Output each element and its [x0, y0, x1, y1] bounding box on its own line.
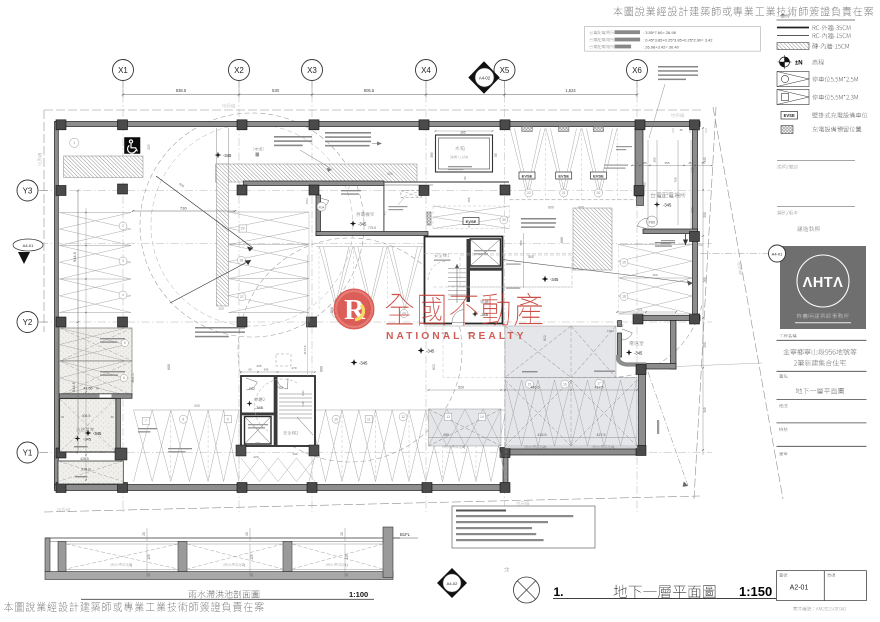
svg-text:-345: -345	[634, 351, 643, 356]
svg-text:838.5: 838.5	[176, 88, 187, 93]
svg-text:385: 385	[653, 157, 657, 162]
svg-text:65: 65	[494, 153, 498, 157]
svg-text:1.: 1.	[554, 585, 564, 599]
svg-text:250: 250	[703, 342, 707, 348]
svg-text:417: 417	[383, 210, 387, 215]
svg-text:230: 230	[292, 452, 297, 456]
svg-text:F60A: F60A	[305, 198, 309, 204]
svg-text:10: 10	[334, 417, 338, 421]
svg-text:Y2: Y2	[23, 318, 33, 327]
svg-text:45: 45	[345, 573, 349, 577]
svg-text:-345: -345	[93, 431, 102, 436]
svg-text:90: 90	[248, 368, 252, 372]
svg-text:385: 385	[430, 152, 434, 158]
svg-text:9: 9	[227, 417, 229, 421]
svg-text:X4: X4	[421, 66, 431, 75]
svg-text:4: 4	[122, 293, 124, 297]
svg-text:20: 20	[245, 532, 249, 536]
svg-text:005: 005	[387, 172, 393, 176]
svg-text:45: 45	[147, 573, 151, 577]
svg-text:29: 29	[241, 227, 245, 231]
svg-text:500: 500	[330, 307, 334, 313]
svg-text:14: 14	[480, 415, 484, 419]
svg-text:345: 345	[703, 157, 707, 163]
svg-text:270: 270	[291, 366, 296, 370]
svg-text:1.20: 1.20	[301, 401, 305, 407]
svg-text:180: 180	[691, 167, 695, 173]
svg-text:-345: -345	[663, 203, 672, 208]
svg-text:: 0.45*3.85+0.25*3.85+0.25*2.9: : 0.45*3.85+0.25*3.85+0.25*2.90= 3.42	[643, 37, 713, 42]
svg-text:416.5: 416.5	[538, 433, 547, 437]
svg-text:005: 005	[194, 404, 200, 408]
svg-text:28: 28	[240, 259, 244, 263]
svg-text:500: 500	[528, 255, 534, 259]
svg-text:20: 20	[61, 415, 65, 419]
svg-text:864.5: 864.5	[131, 374, 135, 383]
svg-text:-345: -345	[550, 277, 559, 282]
svg-text:20: 20	[597, 191, 601, 195]
svg-text:-345: -345	[358, 222, 367, 227]
svg-text:240: 240	[467, 222, 471, 227]
svg-text:-345: -345	[359, 361, 368, 366]
svg-text:760: 760	[703, 277, 707, 283]
svg-text:775.5: 775.5	[368, 226, 376, 230]
svg-text:40: 40	[110, 415, 114, 419]
svg-text:530: 530	[272, 88, 280, 93]
svg-text:2): 2)	[242, 563, 245, 567]
svg-text:25: 25	[688, 161, 692, 165]
svg-text:EVSE: EVSE	[558, 173, 569, 178]
svg-text:A2-01: A2-01	[790, 585, 809, 592]
svg-text:: 26.98+3.42= 30.40: : 26.98+3.42= 30.40	[643, 44, 680, 49]
svg-text:600: 600	[167, 364, 171, 370]
svg-text:18: 18	[622, 295, 626, 299]
svg-text:12: 12	[401, 415, 405, 419]
svg-text:16: 16	[563, 382, 567, 386]
svg-text:125: 125	[345, 554, 349, 560]
svg-text:805.5: 805.5	[364, 88, 375, 93]
svg-text:20: 20	[340, 532, 344, 536]
svg-text:A4-01: A4-01	[772, 252, 783, 257]
svg-text:X1: X1	[118, 66, 128, 75]
svg-text:27: 27	[240, 295, 244, 299]
svg-text:125: 125	[250, 554, 254, 560]
svg-text:FD4: FD4	[319, 205, 325, 209]
svg-text:250: 250	[703, 212, 707, 218]
svg-text:1): 1)	[611, 445, 614, 449]
svg-text:520: 520	[458, 386, 464, 390]
svg-text:X2: X2	[234, 66, 244, 75]
svg-text:760: 760	[643, 182, 647, 188]
svg-text:427.5: 427.5	[597, 433, 606, 437]
svg-text:EVSE: EVSE	[522, 173, 533, 178]
svg-text:220: 220	[255, 441, 260, 445]
svg-text:220: 220	[253, 455, 258, 459]
svg-text:250: 250	[691, 207, 695, 213]
svg-text:345: 345	[703, 407, 707, 413]
svg-text:2: 2	[122, 224, 124, 228]
svg-text:495: 495	[443, 433, 449, 437]
svg-text:EVSE: EVSE	[784, 113, 795, 118]
svg-text:600: 600	[560, 237, 564, 243]
svg-text:-345: -345	[480, 312, 489, 317]
svg-text:-345: -345	[255, 405, 264, 410]
svg-text:: 3.55*7.60= 26.98: : 3.55*7.60= 26.98	[643, 30, 677, 35]
svg-text:3): 3)	[462, 445, 465, 449]
svg-text:X5: X5	[500, 66, 510, 75]
svg-text:8: 8	[182, 417, 184, 421]
svg-text:1: 1	[73, 141, 75, 145]
svg-text:345: 345	[264, 368, 269, 372]
svg-text:944.5: 944.5	[71, 381, 76, 392]
svg-text:235: 235	[256, 364, 261, 368]
svg-text:005: 005	[147, 144, 151, 150]
svg-text:X3: X3	[307, 66, 317, 75]
svg-text:FD2: FD2	[277, 386, 283, 390]
svg-text:1173.5: 1173.5	[303, 345, 307, 354]
svg-text:ΛHTΛ: ΛHTΛ	[803, 275, 844, 291]
svg-text:221: 221	[637, 308, 642, 312]
svg-text:5: 5	[124, 341, 126, 345]
svg-text:22: 22	[527, 191, 531, 195]
svg-text:6: 6	[123, 376, 125, 380]
svg-text:EVSE: EVSE	[593, 173, 604, 178]
svg-text:FD2: FD2	[617, 324, 624, 328]
svg-text:A4-01: A4-01	[23, 243, 34, 248]
svg-text:Y1: Y1	[23, 448, 33, 457]
svg-text:FD6: FD6	[649, 220, 655, 224]
svg-text:20: 20	[142, 532, 146, 536]
svg-text:500: 500	[519, 240, 523, 245]
svg-text:-345: -345	[83, 437, 92, 442]
svg-text:150: 150	[652, 273, 657, 277]
svg-text:600: 600	[319, 366, 323, 372]
svg-text:-345: -345	[223, 153, 232, 158]
svg-text:446.5: 446.5	[531, 386, 540, 390]
svg-text:005: 005	[697, 243, 703, 247]
svg-text:3: 3	[122, 259, 124, 263]
svg-text:F60A: F60A	[607, 329, 614, 333]
svg-text:600: 600	[543, 335, 547, 341]
svg-text:125: 125	[147, 554, 151, 560]
svg-text:730: 730	[180, 205, 187, 210]
svg-text:600: 600	[548, 206, 554, 210]
svg-text:35: 35	[696, 128, 700, 132]
svg-text:355: 355	[664, 161, 669, 165]
svg-text:944.5: 944.5	[72, 251, 77, 262]
svg-text:21: 21	[562, 191, 566, 195]
svg-text:155: 155	[467, 197, 471, 202]
svg-text:95: 95	[643, 161, 647, 165]
svg-text:-345: -345	[426, 349, 435, 354]
svg-text:120: 120	[218, 307, 223, 311]
svg-text:45: 45	[250, 573, 254, 577]
svg-text:417.5: 417.5	[595, 386, 604, 390]
svg-text:±N: ±N	[795, 61, 803, 67]
svg-text:600: 600	[432, 364, 436, 370]
svg-text:1:100: 1:100	[349, 590, 368, 599]
svg-text:19: 19	[622, 261, 626, 265]
svg-text:41.66: 41.66	[84, 387, 93, 391]
svg-text:1:150: 1:150	[739, 584, 772, 599]
svg-text:005: 005	[578, 206, 584, 210]
svg-text:35: 35	[679, 128, 683, 132]
svg-text:2.21: 2.21	[301, 390, 305, 396]
svg-text:m: m	[96, 387, 99, 391]
svg-text:Y3: Y3	[23, 186, 33, 195]
svg-text:2): 2)	[543, 445, 546, 449]
svg-text:426.5: 426.5	[80, 457, 89, 461]
svg-text:760: 760	[674, 177, 678, 182]
svg-text:1,524: 1,524	[565, 88, 576, 93]
svg-text:A4-02: A4-02	[447, 581, 458, 586]
svg-text:B1FL: B1FL	[400, 532, 411, 537]
svg-text:30: 30	[502, 218, 506, 222]
svg-text:82: 82	[463, 176, 467, 180]
svg-text:3): 3)	[129, 563, 132, 567]
svg-text:13: 13	[446, 415, 450, 419]
svg-text:7: 7	[145, 419, 147, 423]
svg-text:X6: X6	[632, 66, 642, 75]
svg-text:FD2: FD2	[249, 387, 255, 391]
svg-text:15: 15	[634, 161, 638, 165]
svg-text:11: 11	[367, 417, 371, 421]
svg-text:NATIONAL REALTY: NATIONAL REALTY	[386, 331, 527, 342]
svg-text:A4-02: A4-02	[479, 75, 491, 80]
